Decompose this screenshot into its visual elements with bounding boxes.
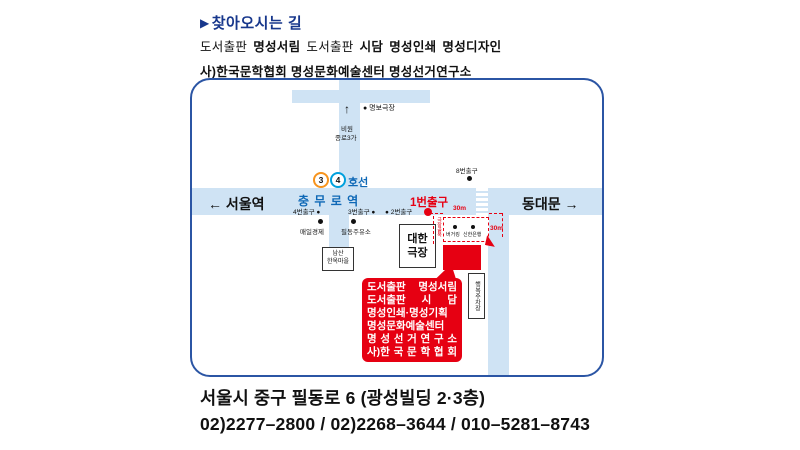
- address-line: 서울시 중구 필동로 6 (광성빌딩 2·3층): [200, 385, 590, 411]
- maeil-label: 매일경제: [300, 226, 324, 236]
- exit8-dot: [467, 176, 472, 181]
- exit1-dot: [424, 208, 432, 216]
- bubble-line: 명성인쇄·명성기획: [367, 307, 457, 320]
- road-top-cross: [292, 90, 430, 103]
- direction-seoul-station: ← 서울역: [208, 194, 265, 214]
- subway-line3-badge: 3: [313, 172, 329, 188]
- parking-lot-box: 행복주차장: [468, 273, 485, 319]
- bubble-line: 도서출판 시 담: [367, 294, 457, 307]
- exit8-label: 8번출구: [456, 165, 478, 175]
- daehan-cinema-box: 대한 극장: [399, 224, 436, 268]
- exit2-label: ● 2번출구: [385, 206, 412, 216]
- line-suffix-label: 호선: [348, 174, 368, 190]
- org-name: 시담: [360, 40, 384, 54]
- org-name: 명성디자인: [442, 40, 501, 54]
- gas-station-label: 필동주유소: [341, 226, 371, 236]
- alley-label: 극장골목: [436, 217, 443, 237]
- namsan-hanok-village-box: 남산 한옥마을: [322, 247, 354, 271]
- burger-label: 버거킹: [446, 231, 460, 238]
- bank-label: 신한은행: [463, 231, 481, 238]
- myeongbo-theater-label: ● 명보극장: [363, 103, 395, 113]
- org-name: 도서출판: [200, 40, 247, 54]
- location-map: ↑ 비원 종로3가 ● 명보극장 3 4 호선 충 무 로 역 ← 서울역 동대…: [190, 78, 604, 377]
- footer: 서울시 중구 필동로 6 (광성빌딩 2·3층) 02)2277–2800 / …: [200, 385, 590, 437]
- alley-dash-line: [433, 216, 434, 244]
- namsan-line2: 한옥마을: [323, 258, 353, 266]
- bubble-line: 명성문화예술센터: [367, 320, 457, 333]
- gas-station-dot: [351, 219, 356, 224]
- distance-30m-right: 30m: [490, 225, 503, 232]
- bubble-line: 사)한 국 문 학 협 회: [367, 346, 457, 359]
- landmark-dashed-box: [443, 217, 489, 242]
- burger-dot: [453, 225, 457, 229]
- daehan-line1: 대한: [400, 232, 435, 246]
- distance-30m-top: 30m: [453, 205, 466, 212]
- destination-building: [443, 245, 481, 270]
- phone-line: 02)2277–2800 / 02)2268–3644 / 010–5281–8…: [200, 411, 590, 437]
- daehan-line2: 극장: [400, 246, 435, 260]
- pointer-icon: ▶: [200, 16, 210, 30]
- exit4-label: 4번출구 ●: [293, 206, 320, 216]
- route-arrowhead-icon: [485, 235, 497, 247]
- org-name: 명성인쇄: [389, 40, 436, 54]
- callout-bubble: 도서출판 명성서림도서출판 시 담명성인쇄·명성기획명성문화예술센터명 성 선 …: [362, 278, 462, 362]
- directions-flyer: ▶찾아오시는 길 도서출판명성서림도서출판시담명성인쇄명성디자인 사)한국문학협…: [0, 0, 800, 450]
- exit3-label: 3번출구 ●: [348, 206, 375, 216]
- org-name: 명성서림: [253, 40, 300, 54]
- route-dash-segment: [430, 213, 443, 214]
- maeil-dot: [318, 219, 323, 224]
- bubble-line: 도서출판 명성서림: [367, 281, 457, 294]
- direction-dongdaemun: 동대문 →: [522, 194, 579, 214]
- namsan-line1: 남산: [323, 250, 353, 258]
- bubble-line: 명 성 선 거 연 구 소: [367, 333, 457, 346]
- org-name: 도서출판: [306, 40, 353, 54]
- crosswalk: [476, 188, 488, 215]
- org-list-line1: 도서출판명성서림도서출판시담명성인쇄명성디자인: [200, 37, 507, 58]
- bank-dot: [471, 225, 475, 229]
- subway-line4-badge: 4: [330, 172, 346, 188]
- page-title: ▶찾아오시는 길: [200, 12, 507, 33]
- page-title-text: 찾아오시는 길: [212, 15, 302, 32]
- route-dash-segment: [489, 213, 502, 214]
- header: ▶찾아오시는 길 도서출판명성서림도서출판시담명성인쇄명성디자인 사)한국문학협…: [200, 12, 507, 83]
- dest-jongro3ga: 종로3가: [335, 132, 357, 142]
- north-arrow-icon: ↑: [344, 102, 350, 116]
